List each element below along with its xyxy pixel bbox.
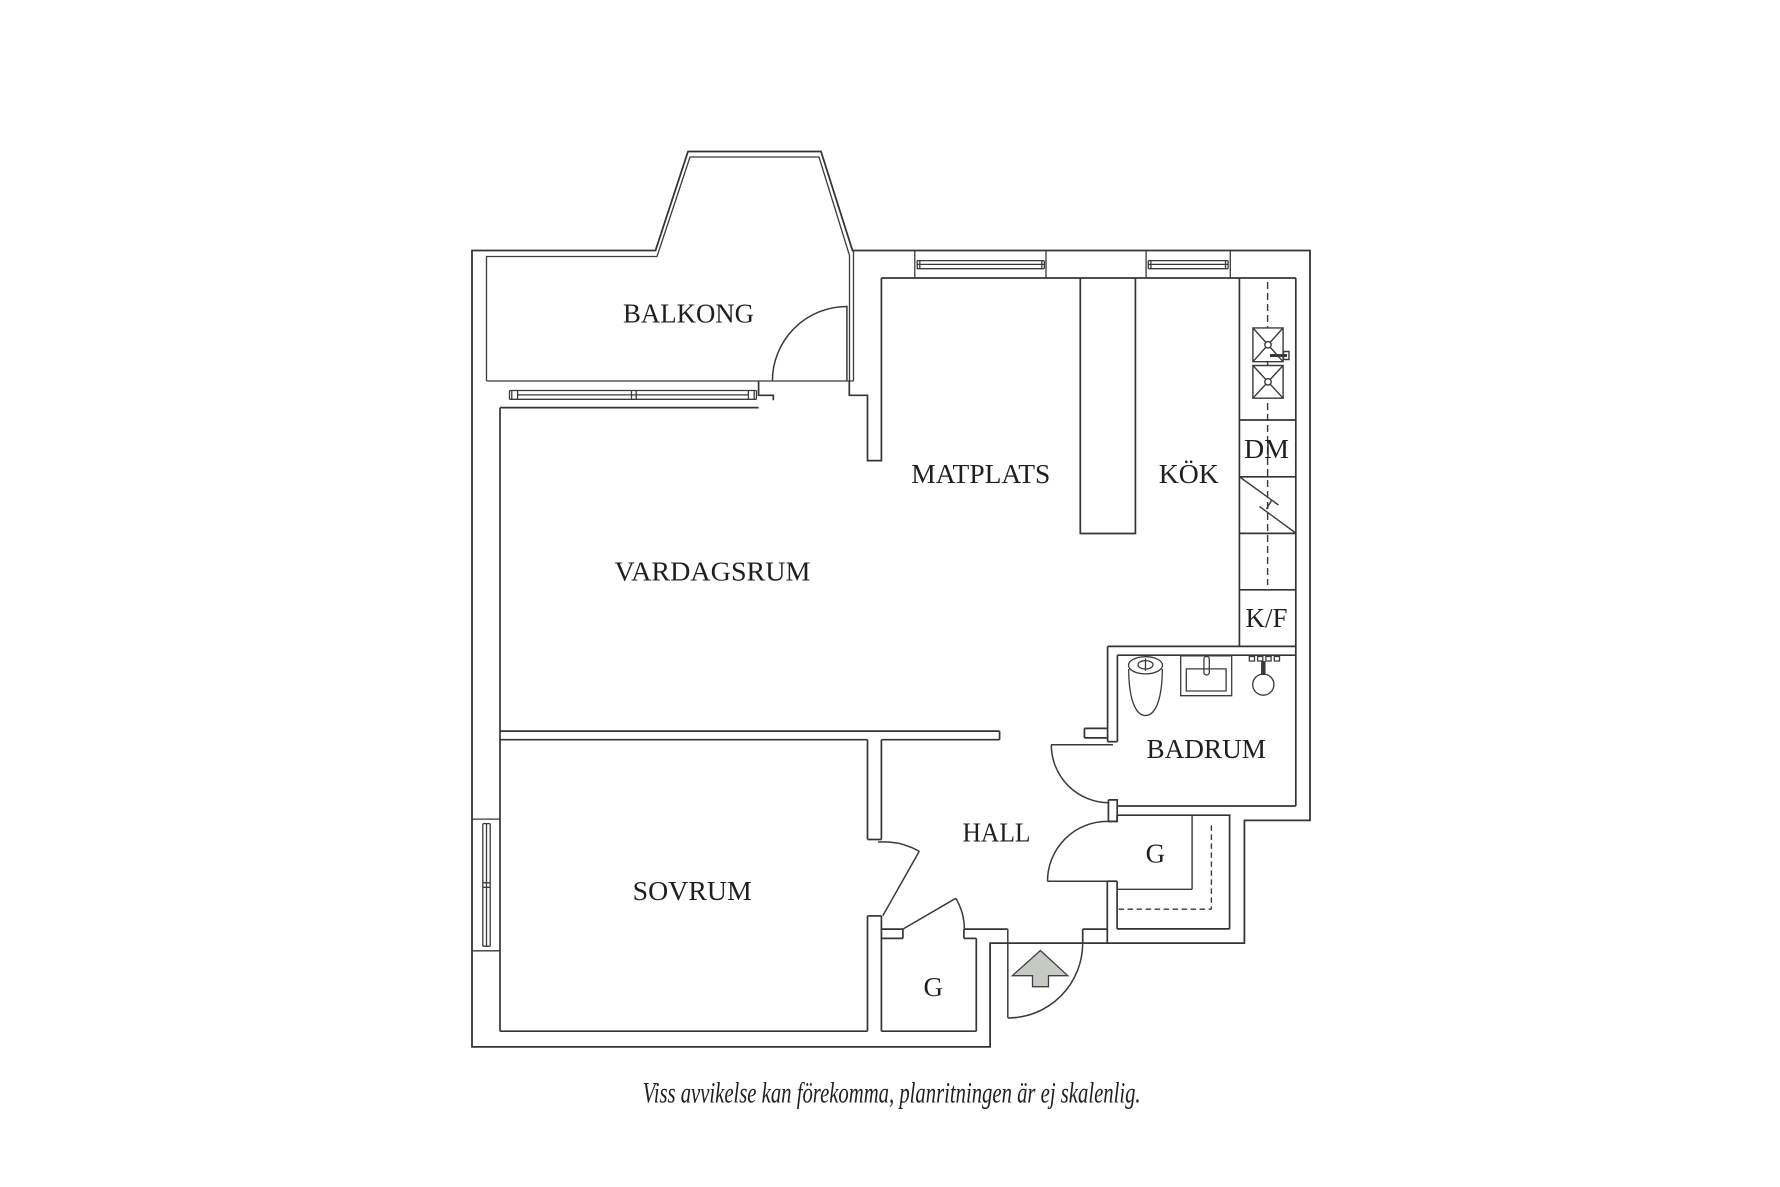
- svg-text:BALKONG: BALKONG: [623, 299, 754, 329]
- svg-text:BADRUM: BADRUM: [1146, 734, 1266, 764]
- svg-text:MATPLATS: MATPLATS: [911, 459, 1050, 489]
- svg-text:K/F: K/F: [1246, 603, 1288, 633]
- svg-text:SOVRUM: SOVRUM: [633, 876, 752, 906]
- svg-text:VARDAGSRUM: VARDAGSRUM: [615, 557, 811, 587]
- svg-text:G: G: [923, 972, 943, 1002]
- svg-text:KÖK: KÖK: [1159, 459, 1220, 489]
- svg-text:G: G: [1146, 838, 1166, 868]
- svg-text:DM: DM: [1244, 434, 1289, 464]
- svg-text:HALL: HALL: [963, 818, 1031, 848]
- svg-text:Viss avvikelse kan förekomma,: Viss avvikelse kan förekomma, planritnin…: [643, 1076, 1141, 1109]
